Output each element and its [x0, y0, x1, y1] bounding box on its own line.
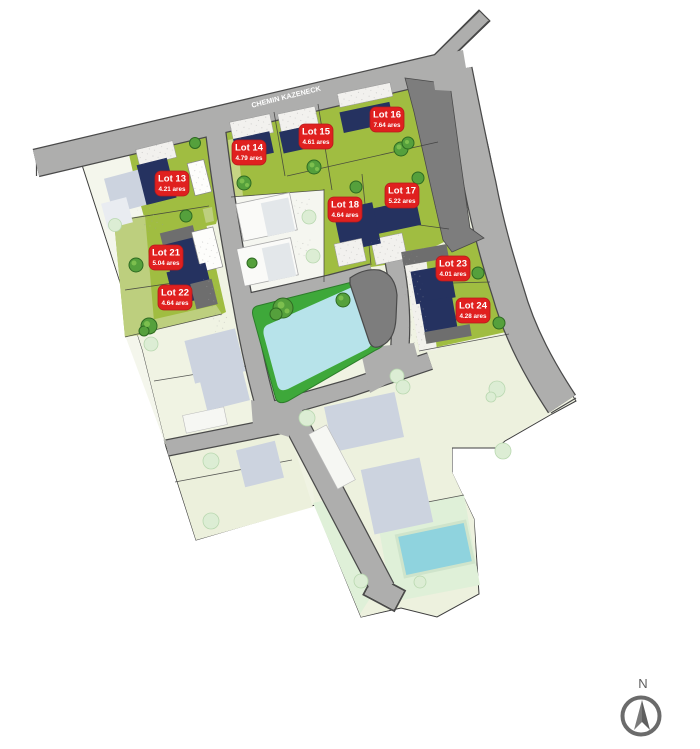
- svg-text:4.64 ares: 4.64 ares: [332, 212, 359, 219]
- svg-text:4.01 ares: 4.01 ares: [440, 271, 467, 278]
- svg-text:7.64 ares: 7.64 ares: [374, 122, 401, 129]
- svg-text:Lot 17: Lot 17: [388, 186, 416, 197]
- svg-text:Lot 21: Lot 21: [152, 248, 181, 259]
- svg-text:4.28 ares: 4.28 ares: [460, 313, 487, 320]
- svg-text:Lot 15: Lot 15: [302, 127, 331, 138]
- svg-text:Lot 14: Lot 14: [235, 143, 264, 154]
- svg-text:N: N: [638, 676, 647, 691]
- svg-text:4.21 ares: 4.21 ares: [159, 186, 186, 193]
- svg-text:4.79 ares: 4.79 ares: [236, 155, 263, 162]
- svg-text:Lot 22: Lot 22: [161, 288, 189, 299]
- svg-text:5.22 ares: 5.22 ares: [389, 198, 416, 205]
- svg-text:4.61 ares: 4.61 ares: [303, 139, 330, 146]
- svg-text:4.64 ares: 4.64 ares: [162, 300, 189, 307]
- svg-text:Lot 24: Lot 24: [459, 301, 488, 312]
- svg-text:Lot 18: Lot 18: [331, 200, 359, 211]
- svg-text:5.04 ares: 5.04 ares: [153, 260, 180, 267]
- svg-text:Lot 13: Lot 13: [158, 174, 186, 185]
- svg-text:Lot 16: Lot 16: [373, 110, 401, 121]
- svg-text:Lot 23: Lot 23: [439, 259, 467, 270]
